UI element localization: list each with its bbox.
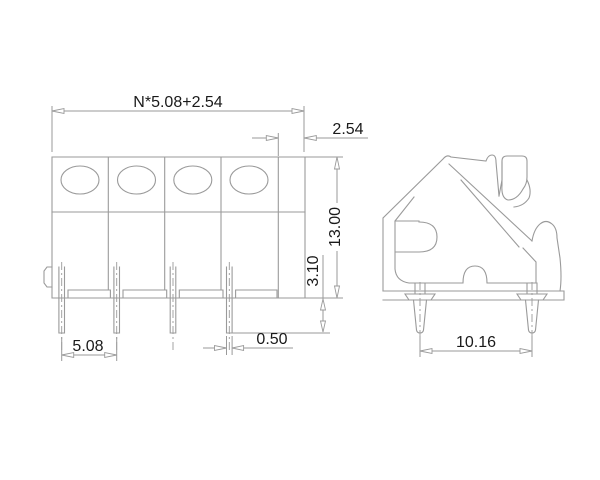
dim-standoff: 3.10 <box>232 255 330 333</box>
arrowhead <box>52 109 64 114</box>
side-view: 10.16 <box>383 155 564 357</box>
dim-body-height-label: 13.00 <box>327 207 344 247</box>
wire-hole-3 <box>174 166 212 194</box>
dim-total-width-label: N*5.08+2.54 <box>133 94 223 111</box>
arrowhead <box>105 353 117 358</box>
release-lever <box>502 156 527 200</box>
arrowhead <box>335 157 340 169</box>
dim-pin-width-label: 0.50 <box>256 331 287 348</box>
release-lever-foot-detail <box>514 180 530 207</box>
arrowhead <box>292 109 304 114</box>
arrowhead <box>266 136 278 141</box>
dim-extension-line <box>52 106 304 152</box>
side-diagonal-inner <box>461 180 519 247</box>
arrowhead <box>304 136 316 141</box>
dim-pin-pitch-label: 5.08 <box>72 338 103 355</box>
front-body-outline <box>52 157 305 298</box>
side-pin-roots <box>415 283 537 294</box>
arrowhead <box>420 349 432 354</box>
arrowhead <box>321 299 326 310</box>
dim-standoff-label: 3.10 <box>305 255 322 286</box>
arrowhead <box>215 346 227 351</box>
dim-total-width: N*5.08+2.54 <box>52 94 304 152</box>
front-view: N*5.08+2.54 2.54 13.00 3.10 <box>44 94 368 361</box>
arrowhead <box>321 321 326 332</box>
bottom-step-2 <box>123 290 167 298</box>
bottom-step-3 <box>179 290 223 298</box>
wire-hole-2 <box>118 166 156 194</box>
arrowhead <box>520 349 532 354</box>
front-pins <box>59 262 232 350</box>
arrowhead <box>335 286 340 298</box>
side-interlock-tab <box>44 267 52 287</box>
wire-hole-1 <box>61 166 99 194</box>
drawing-canvas: N*5.08+2.54 2.54 13.00 3.10 <box>0 0 600 480</box>
dim-pin-pitch: 5.08 <box>62 337 117 361</box>
wire-hole-4 <box>230 166 268 194</box>
dim-pin-width: 0.50 <box>203 331 293 355</box>
dim-end-margin-label: 2.54 <box>332 121 363 138</box>
bottom-step-4 <box>236 290 277 298</box>
dim-side-pin-span-label: 10.16 <box>456 334 496 351</box>
terminal-block-technical-drawing: N*5.08+2.54 2.54 13.00 3.10 <box>0 0 600 480</box>
arrowhead <box>232 346 244 351</box>
dim-end-margin: 2.54 <box>252 121 368 156</box>
bottom-step-1 <box>68 290 110 298</box>
side-outline-left-top <box>383 155 499 291</box>
dim-side-pin-span: 10.16 <box>420 334 532 357</box>
side-cavity <box>395 197 536 283</box>
side-diagonal-outer <box>449 164 532 241</box>
